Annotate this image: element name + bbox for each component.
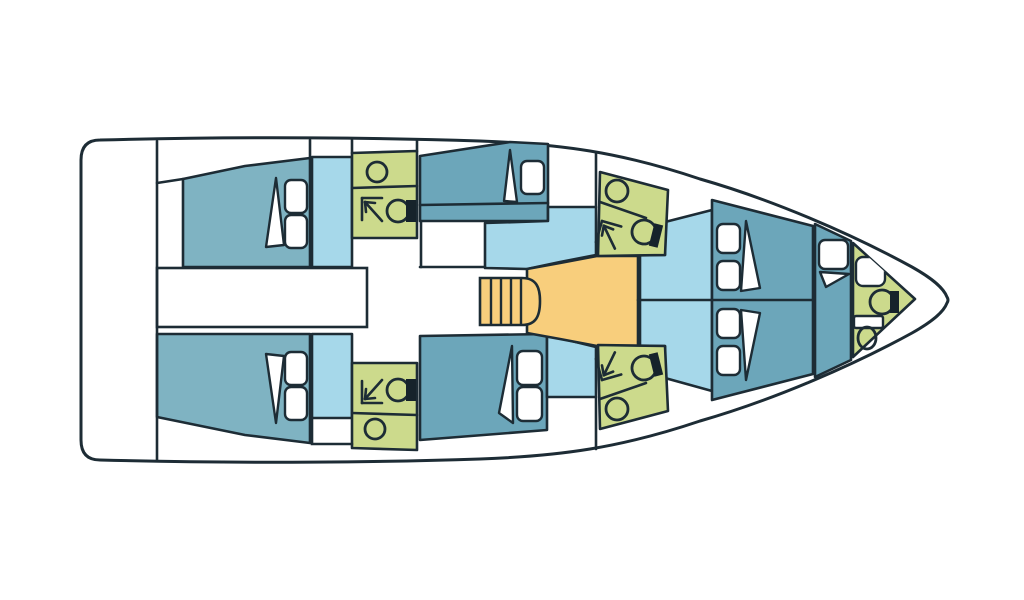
pillow [285,180,307,213]
pillow [285,215,307,248]
companionway-corridor [157,268,367,327]
pillow [717,309,740,338]
shower-stroke [365,389,366,399]
passage-starboard [312,334,352,418]
yacht-deck-plan [0,0,1024,600]
pillow [285,387,307,420]
pillow [717,346,740,375]
pillow [285,352,307,385]
toilet-tank [406,200,416,222]
shower-stroke [365,202,366,212]
pillow [521,161,544,194]
deck-plan-canvas [0,0,1024,600]
shower-stroke [365,202,375,203]
yacht-deck-plan-page [0,0,1024,600]
companionway-stairs [480,278,540,325]
toilet-tank [406,379,416,401]
galley [527,256,638,346]
passage-port [312,157,352,267]
pillow [517,387,542,421]
toilet-tank [890,291,899,313]
pillow [819,240,848,269]
shower-stroke [365,398,375,399]
pillow [717,224,740,253]
head-aft-starboard [352,363,417,450]
pillow [517,351,542,385]
pillow [717,261,740,290]
